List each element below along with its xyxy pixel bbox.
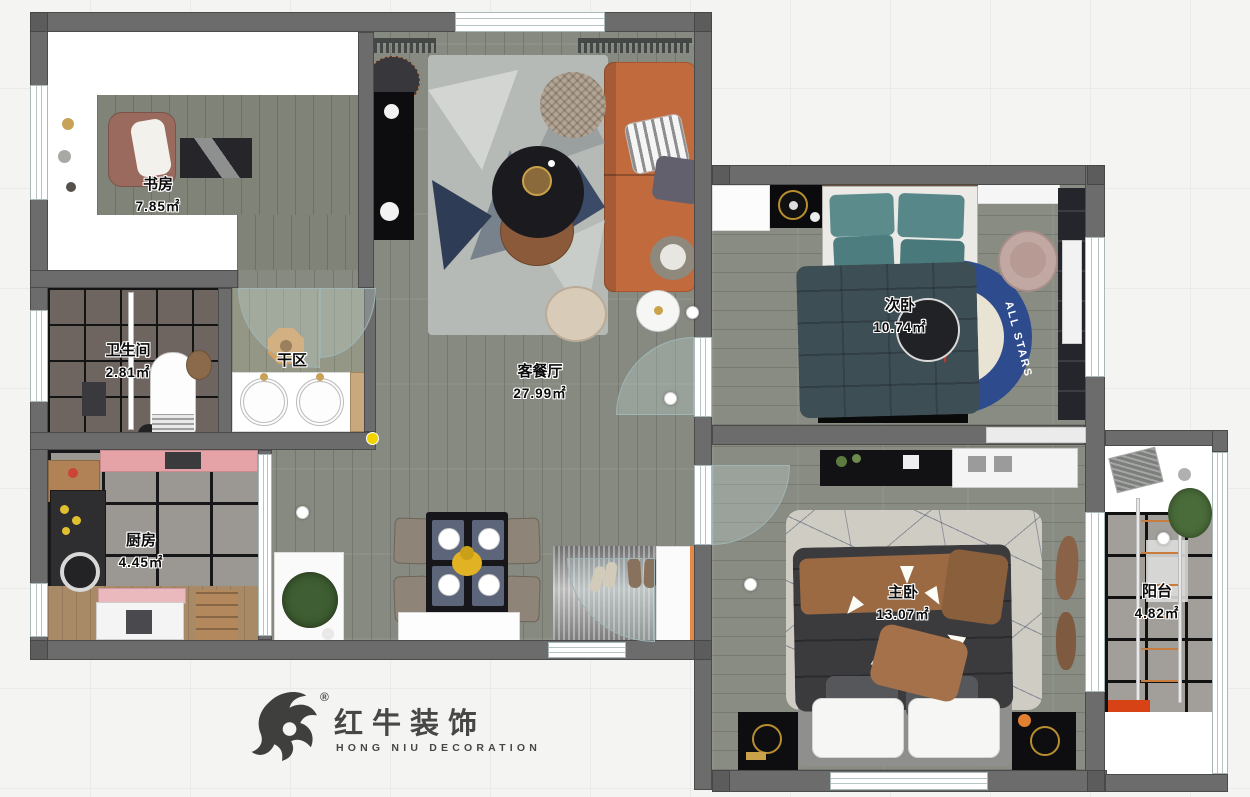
- window-bathroom-left: [30, 310, 48, 402]
- nightstand-left-tray: [746, 752, 766, 760]
- marker-dot-2: [664, 392, 677, 405]
- window-kitchen-left: [30, 583, 48, 637]
- desk-cup: [810, 212, 820, 222]
- kitchen-sliding-door: [258, 454, 272, 636]
- lemon-3: [62, 527, 70, 535]
- shoe-cabinet: [656, 546, 694, 642]
- tomato: [68, 468, 78, 478]
- wall-balcony-stub: [1212, 430, 1228, 452]
- master-bedroom-area: 13.07㎡: [858, 607, 948, 623]
- dresser-plant-1: [836, 456, 847, 467]
- lemon-1: [60, 505, 69, 514]
- window-study-left: [30, 85, 48, 200]
- plate-3: [438, 574, 460, 596]
- lemon-2: [72, 516, 81, 525]
- window-bed2-right: [1085, 237, 1105, 377]
- drying-bar-5: [1141, 648, 1178, 650]
- cabinet-picture-1: [968, 456, 986, 472]
- nightstand-right-lamp: [1030, 726, 1060, 756]
- floor-study-wood-2: [237, 215, 358, 270]
- kitchen-ladder-shelf: [196, 590, 238, 640]
- kitchen-name: 厨房: [105, 532, 177, 550]
- marker-dot-yellow: [366, 432, 379, 445]
- window-master-bottom: [830, 772, 988, 790]
- logo-company-name-cn: 红牛装饰: [334, 700, 486, 742]
- balcony-stool-orange: [1108, 700, 1150, 712]
- kitchen-area: 4.45㎡: [105, 555, 177, 571]
- logo-company-name-en: HONG NIU DECORATION: [336, 742, 541, 754]
- room-label-dry-area: 干区: [262, 352, 322, 370]
- shower-head: [82, 382, 106, 416]
- wall-corner-7: [1087, 770, 1105, 792]
- marker-dot-3: [744, 578, 757, 591]
- balcony-drain: [1178, 468, 1191, 481]
- floor-plan: ALL STARS ALL STARS: [0, 0, 1250, 797]
- bath-stool: [186, 350, 212, 380]
- marker-dot-5: [686, 306, 699, 319]
- room-label-master-bedroom: 主卧 13.07㎡: [858, 584, 948, 623]
- room-label-kitchen: 厨房 4.45㎡: [105, 532, 177, 571]
- room-label-study: 书房 7.85㎡: [118, 176, 198, 215]
- room-label-bathroom: 卫生间 2.81㎡: [92, 342, 164, 381]
- dresser-frame: [903, 455, 919, 469]
- wall-corner-4: [712, 165, 730, 185]
- plate-1: [438, 528, 460, 550]
- bed2-cabinet-white: [712, 185, 770, 231]
- study-rug: [180, 138, 252, 178]
- marker-dot-4: [1157, 532, 1170, 545]
- floor-balcony-bottom: [1105, 712, 1212, 774]
- wall-study-bottom: [30, 270, 238, 288]
- balcony-area: 4.82㎡: [1123, 606, 1191, 622]
- bed2-wardrobe-panel: [1062, 240, 1082, 344]
- kitchen-stove: [165, 452, 201, 469]
- balcony-name: 阳台: [1123, 583, 1191, 601]
- dresser-plant-2: [852, 454, 861, 463]
- dining-side-chair: [545, 286, 607, 342]
- dry-area-name: 干区: [262, 352, 322, 370]
- wall-balcony-top: [1105, 430, 1228, 446]
- wall-top-main: [30, 12, 712, 32]
- door-frame-bed2: [694, 337, 712, 417]
- pillow-teal-1: [829, 193, 894, 237]
- drying-bar-2: [1141, 552, 1178, 554]
- kitchen-sink: [60, 552, 100, 592]
- wall-corner-5: [1087, 165, 1105, 185]
- plate-4: [478, 574, 500, 596]
- sink-left: [240, 378, 288, 426]
- wall-wing-top: [712, 165, 1105, 185]
- study-decor-bowl: [62, 118, 74, 130]
- entry-door-threshold: [548, 642, 626, 658]
- pillow-teal-2: [897, 193, 964, 239]
- study-name: 书房: [118, 176, 198, 194]
- master-bedroom-name: 主卧: [858, 584, 948, 602]
- study-decor-plate: [58, 150, 71, 163]
- potted-plant: [282, 572, 338, 628]
- sofa-bowl-inner: [660, 244, 686, 270]
- wall-corner-8: [694, 640, 712, 660]
- plant-table-cup: [322, 628, 334, 640]
- bed2-shelf-white: [968, 184, 1060, 204]
- sofa-backrest: [604, 62, 616, 292]
- coffee-table-tray: [522, 166, 552, 196]
- second-bedroom-area: 10.74㎡: [855, 320, 945, 336]
- curtain-right: [578, 38, 692, 53]
- master-pillow-white-2: [908, 698, 1000, 758]
- master-curtain-2: [1056, 612, 1076, 670]
- wall-corner-2: [694, 12, 712, 32]
- kitchen-appliance-door: [126, 610, 152, 634]
- tv-console-decor-2: [380, 202, 399, 221]
- wall-corner-6: [712, 770, 730, 792]
- sink-right: [296, 378, 344, 426]
- living-dining-area: 27.99㎡: [498, 386, 582, 402]
- room-label-living-dining: 客餐厅 27.99㎡: [498, 363, 582, 402]
- living-dining-name: 客餐厅: [498, 363, 582, 381]
- study-decor-cup: [66, 182, 76, 192]
- nightstand-left-lamp: [752, 724, 782, 754]
- faucet-left: [260, 373, 268, 381]
- wall-corner-1: [30, 12, 48, 32]
- dining-chair-3: [503, 517, 541, 564]
- wall-balcony-bottom: [1105, 774, 1228, 792]
- master-blanket-brown-patch: [940, 548, 1009, 626]
- room-label-balcony: 阳台 4.82㎡: [1123, 583, 1191, 622]
- logo-bull-icon: [246, 688, 324, 764]
- table-flowers-center: [460, 546, 474, 560]
- record-player-center: [789, 201, 798, 210]
- wall-bath-kitchen: [30, 432, 376, 450]
- second-bedroom-name: 次卧: [855, 297, 945, 315]
- side-table-decor: [654, 306, 663, 315]
- door-frame-master: [694, 465, 712, 545]
- window-living-top: [455, 12, 605, 32]
- logo-registered-mark: ®: [320, 690, 329, 704]
- master-pillow-white-1: [812, 698, 904, 758]
- nightstand-right-candle: [1018, 714, 1031, 727]
- wall-bath-dry: [218, 288, 232, 450]
- coffee-table-cup: [548, 160, 555, 167]
- plate-2: [478, 528, 500, 550]
- cabinet-picture-2: [994, 456, 1012, 472]
- bathroom-area: 2.81㎡: [92, 365, 164, 381]
- faucet-right: [316, 373, 324, 381]
- knit-pouf: [540, 72, 606, 138]
- bed2-tv-stand: [986, 427, 1086, 443]
- dining-sideboard: [398, 612, 520, 642]
- marker-dot-1: [296, 506, 309, 519]
- tv-console-decor-1: [384, 104, 399, 119]
- window-balcony-right: [1212, 452, 1228, 774]
- study-area: 7.85㎡: [118, 199, 198, 215]
- wall-corner-3: [30, 640, 48, 660]
- drying-bar-6: [1141, 680, 1178, 682]
- bathroom-name: 卫生间: [92, 342, 164, 360]
- wall-study-living: [358, 32, 374, 288]
- bed2-lounge-chair-seat: [1010, 242, 1046, 278]
- window-master-right: [1085, 512, 1105, 692]
- balcony-plant: [1168, 488, 1212, 538]
- room-label-second-bedroom: 次卧 10.74㎡: [855, 297, 945, 336]
